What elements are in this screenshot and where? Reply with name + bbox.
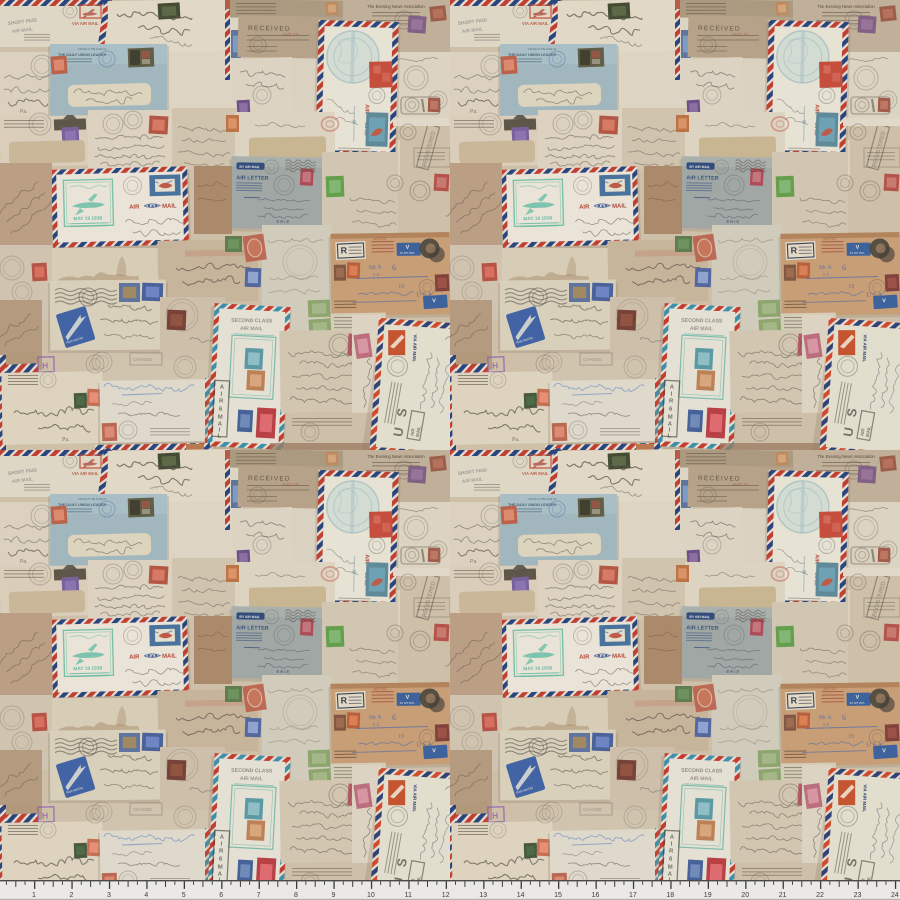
svg-text:18: 18 <box>666 892 674 899</box>
svg-text:15: 15 <box>554 892 562 899</box>
svg-text:23: 23 <box>854 892 862 899</box>
svg-text:14: 14 <box>517 892 525 899</box>
svg-text:3: 3 <box>107 892 111 899</box>
svg-text:16: 16 <box>592 892 600 899</box>
svg-text:20: 20 <box>741 892 749 899</box>
svg-text:1: 1 <box>32 892 36 899</box>
svg-text:7: 7 <box>257 892 261 899</box>
svg-text:2: 2 <box>69 892 73 899</box>
svg-text:12: 12 <box>442 892 450 899</box>
svg-text:22: 22 <box>816 892 824 899</box>
svg-text:17: 17 <box>629 892 637 899</box>
svg-text:19: 19 <box>704 892 712 899</box>
svg-text:5: 5 <box>182 892 186 899</box>
svg-text:4: 4 <box>144 892 148 899</box>
svg-text:13: 13 <box>479 892 487 899</box>
svg-text:11: 11 <box>405 892 412 899</box>
svg-text:24: 24 <box>891 892 899 899</box>
svg-text:8: 8 <box>294 892 298 899</box>
svg-text:6: 6 <box>219 892 223 899</box>
svg-text:9: 9 <box>331 892 335 899</box>
svg-text:10: 10 <box>367 892 375 899</box>
svg-text:21: 21 <box>779 892 787 899</box>
